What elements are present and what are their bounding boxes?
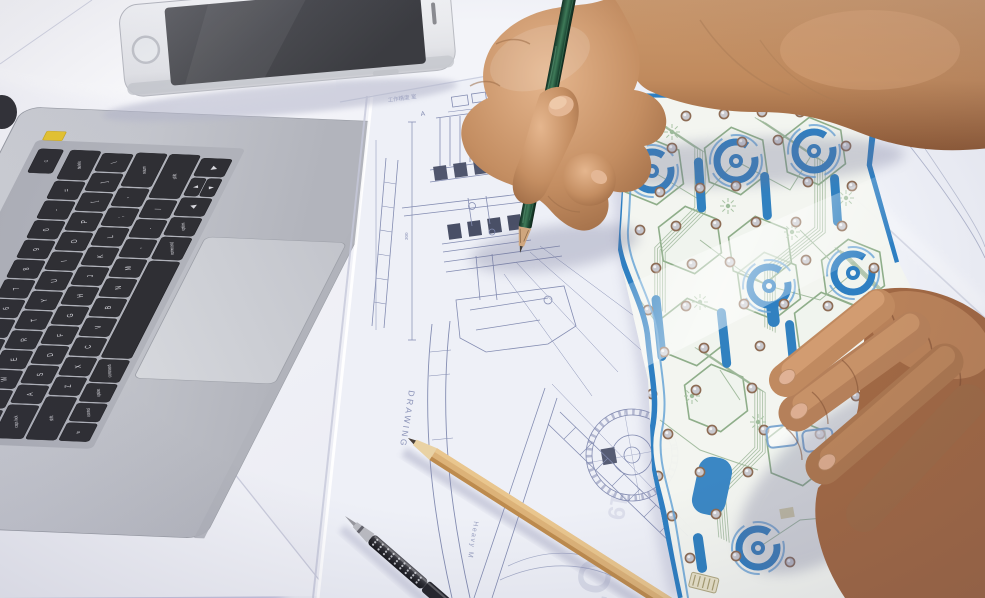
photo-vignette (0, 0, 985, 598)
photo-canvas: ○~1234567890-=deletetabQWERTYUIOP[]\caps… (0, 0, 985, 598)
